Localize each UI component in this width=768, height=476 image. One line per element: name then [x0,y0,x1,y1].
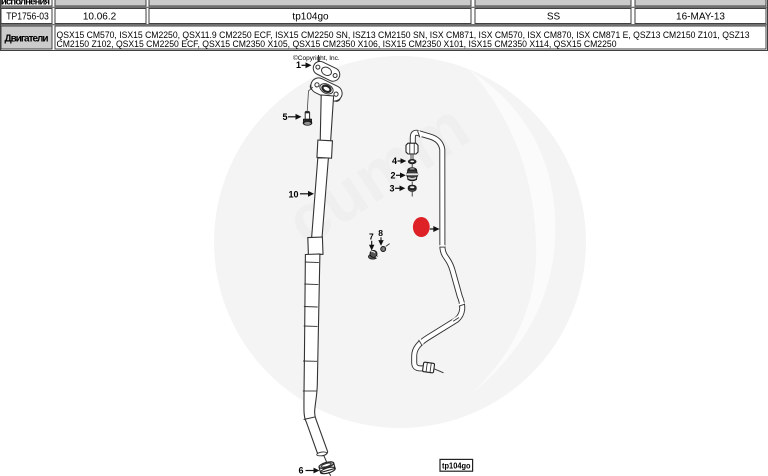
svg-text:CM2150 Z102, QSX15 CM2250 ECF,: CM2150 Z102, QSX15 CM2250 ECF, QSX15 CM2… [57,39,617,50]
svg-text:16-MAY-13: 16-MAY-13 [676,12,725,23]
svg-text:исполнения: исполнения [1,0,50,8]
svg-text:Двигатели: Двигатели [5,34,49,45]
svg-text:TP1756-03: TP1756-03 [6,12,49,23]
svg-text:10: 10 [289,190,299,200]
svg-text:1: 1 [296,60,301,70]
svg-text:10.06.2: 10.06.2 [83,12,117,23]
svg-text:4: 4 [392,156,397,166]
svg-text:6: 6 [299,466,304,476]
svg-text:2: 2 [391,171,396,181]
svg-text:7: 7 [369,232,374,242]
svg-text:3: 3 [390,184,395,194]
svg-text:tp104go: tp104go [292,12,329,23]
svg-text:tp104go: tp104go [442,461,471,471]
svg-text:SS: SS [547,12,561,23]
svg-text:8: 8 [378,228,383,238]
svg-text:5: 5 [283,112,288,122]
